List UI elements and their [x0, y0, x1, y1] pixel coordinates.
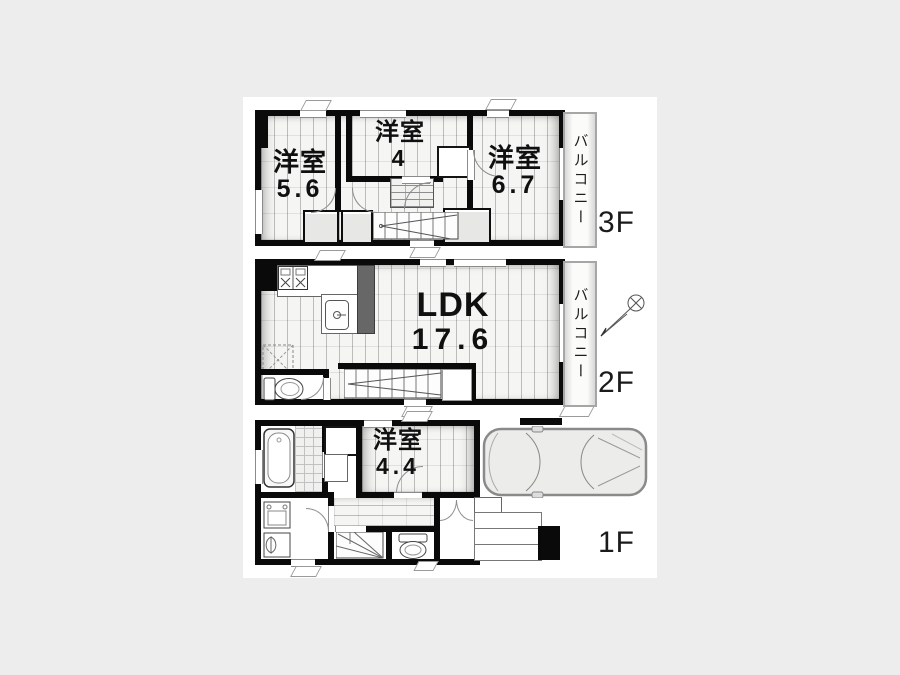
stair-landing	[442, 369, 472, 401]
corridor-floor	[334, 498, 434, 526]
room-size: 17.6	[408, 324, 498, 356]
room-label-3f-right: 洋室 6.7	[483, 144, 547, 199]
compass-north-icon	[594, 288, 650, 344]
toilet-icon-1f	[396, 533, 430, 559]
wall	[386, 526, 392, 559]
stove-icon	[278, 266, 308, 290]
room-name: LDK	[408, 288, 498, 324]
room-name: 洋室	[483, 144, 547, 172]
balcony-3f-label: バルコニー	[570, 133, 591, 228]
window	[255, 190, 263, 234]
stairs-3f	[373, 212, 459, 240]
washing-machine-icon	[263, 501, 291, 529]
floor-label-3f: 3F	[598, 206, 635, 240]
storage-box	[437, 146, 471, 178]
wall	[335, 116, 341, 212]
room-name: 洋室	[266, 148, 334, 176]
stairs-1f	[336, 532, 384, 559]
balcony-2f: バルコニー	[563, 261, 597, 407]
car-icon	[482, 426, 648, 498]
porch-block	[538, 526, 560, 560]
window	[255, 450, 263, 484]
closet	[324, 454, 348, 482]
window	[360, 110, 406, 118]
room-label-3f-left: 洋室 5.6	[266, 148, 334, 203]
room-label-3f-mid: 洋室 4	[368, 120, 432, 171]
wall-pillar	[255, 110, 268, 148]
room-size: 4.4	[366, 454, 430, 479]
room-size: 5.6	[266, 176, 334, 203]
floor-label-1f: 1F	[598, 526, 635, 560]
kitchen-sink-icon	[325, 300, 349, 330]
window	[487, 110, 509, 118]
toilet-icon-2f	[263, 376, 307, 402]
floor-label-2f: 2F	[598, 366, 635, 400]
stairs-2f	[344, 369, 442, 399]
bathtub-icon	[263, 428, 295, 488]
window	[454, 259, 506, 267]
room-size: 6.7	[483, 172, 547, 199]
closet	[341, 210, 373, 244]
bathroom-tile	[295, 426, 322, 492]
room-size: 4	[368, 146, 432, 171]
room-label-1f: 洋室 4.4	[366, 428, 430, 479]
window	[420, 259, 446, 267]
room-name: 洋室	[368, 120, 432, 146]
refrigerator	[357, 265, 375, 334]
balcony-3f: バルコニー	[563, 112, 597, 248]
closet	[324, 426, 358, 456]
wall-pillar	[261, 265, 277, 291]
balcony-2f-label: バルコニー	[570, 287, 591, 382]
wall	[255, 559, 480, 565]
room-name: 洋室	[366, 428, 430, 454]
parking-wall	[520, 418, 562, 425]
door-gap	[323, 378, 331, 400]
wall	[346, 116, 352, 178]
porch-steps	[474, 512, 542, 561]
floorplan-page: バルコニー 洋室 5.6 洋室 4 洋室 6.7 3F	[0, 0, 900, 675]
window	[300, 110, 326, 118]
closet	[303, 210, 339, 244]
washbasin-icon	[263, 532, 291, 558]
room-label-ldk: LDK 17.6	[408, 288, 498, 355]
